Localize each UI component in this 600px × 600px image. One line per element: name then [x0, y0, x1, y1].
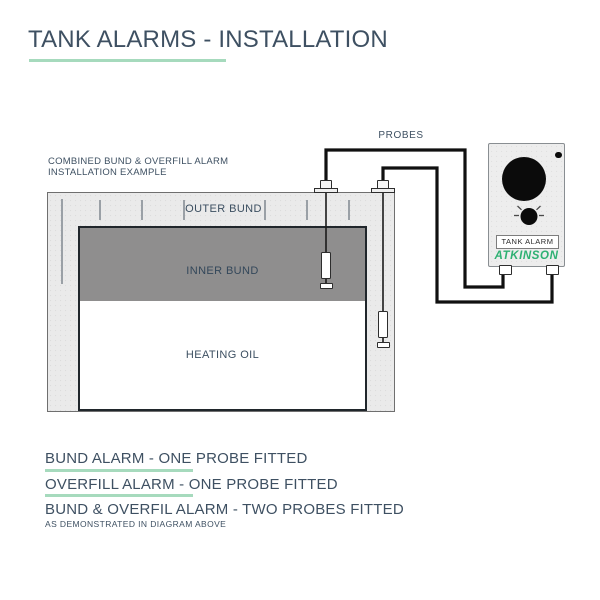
cable-connector-right	[546, 265, 559, 275]
title-underline	[29, 59, 226, 62]
legend-underline-1	[45, 469, 193, 472]
diagram-caption-line2: INSTALLATION EXAMPLE	[48, 167, 228, 178]
level-tick	[141, 200, 143, 220]
probe-tip-2	[377, 342, 390, 348]
outer-bund-label: OUTER BUND	[181, 203, 266, 215]
alarm-device: TANK ALARM ATKINSON	[488, 143, 565, 267]
probe-gland-flange-2	[371, 188, 395, 193]
level-tick	[348, 200, 350, 220]
brand-logo: ATKINSON	[489, 250, 564, 262]
probe-sensor-1	[321, 252, 331, 279]
legend-item-overfill-alarm: OVERFILL ALARM - ONE PROBE FITTED	[45, 476, 338, 493]
diagram-caption-line1: COMBINED BUND & OVERFILL ALARM	[48, 156, 228, 167]
level-gauge-tick	[61, 199, 63, 284]
probe-sensor-2	[378, 311, 388, 338]
legend-item-combined-alarm: BUND & OVERFIL ALARM - TWO PROBES FITTED	[45, 501, 404, 518]
level-tick	[99, 200, 101, 220]
probe-gland-flange-1	[314, 188, 338, 193]
level-tick	[306, 200, 308, 220]
inner-bund-label: INNER BUND	[186, 265, 258, 277]
probe-tip-1	[320, 283, 333, 289]
legend-underline-2	[45, 494, 193, 497]
diagram-caption: COMBINED BUND & OVERFILL ALARM INSTALLAT…	[48, 156, 228, 178]
legend-item-bund-alarm: BUND ALARM - ONE PROBE FITTED	[45, 450, 308, 467]
outer-bund: OUTER BUND INNER BUND HEATING OIL	[47, 192, 395, 412]
heating-oil-label: HEATING OIL	[186, 349, 259, 361]
page: TANK ALARMS - INSTALLATION COMBINED BUND…	[0, 0, 600, 600]
page-title: TANK ALARMS - INSTALLATION	[28, 26, 388, 54]
legend-note: AS DEMONSTRATED IN DIAGRAM ABOVE	[45, 519, 226, 529]
probes-label: PROBES	[361, 130, 441, 141]
heating-oil-area: HEATING OIL	[80, 301, 365, 409]
cable-connector-left	[499, 265, 512, 275]
device-name-plate: TANK ALARM	[496, 235, 559, 249]
